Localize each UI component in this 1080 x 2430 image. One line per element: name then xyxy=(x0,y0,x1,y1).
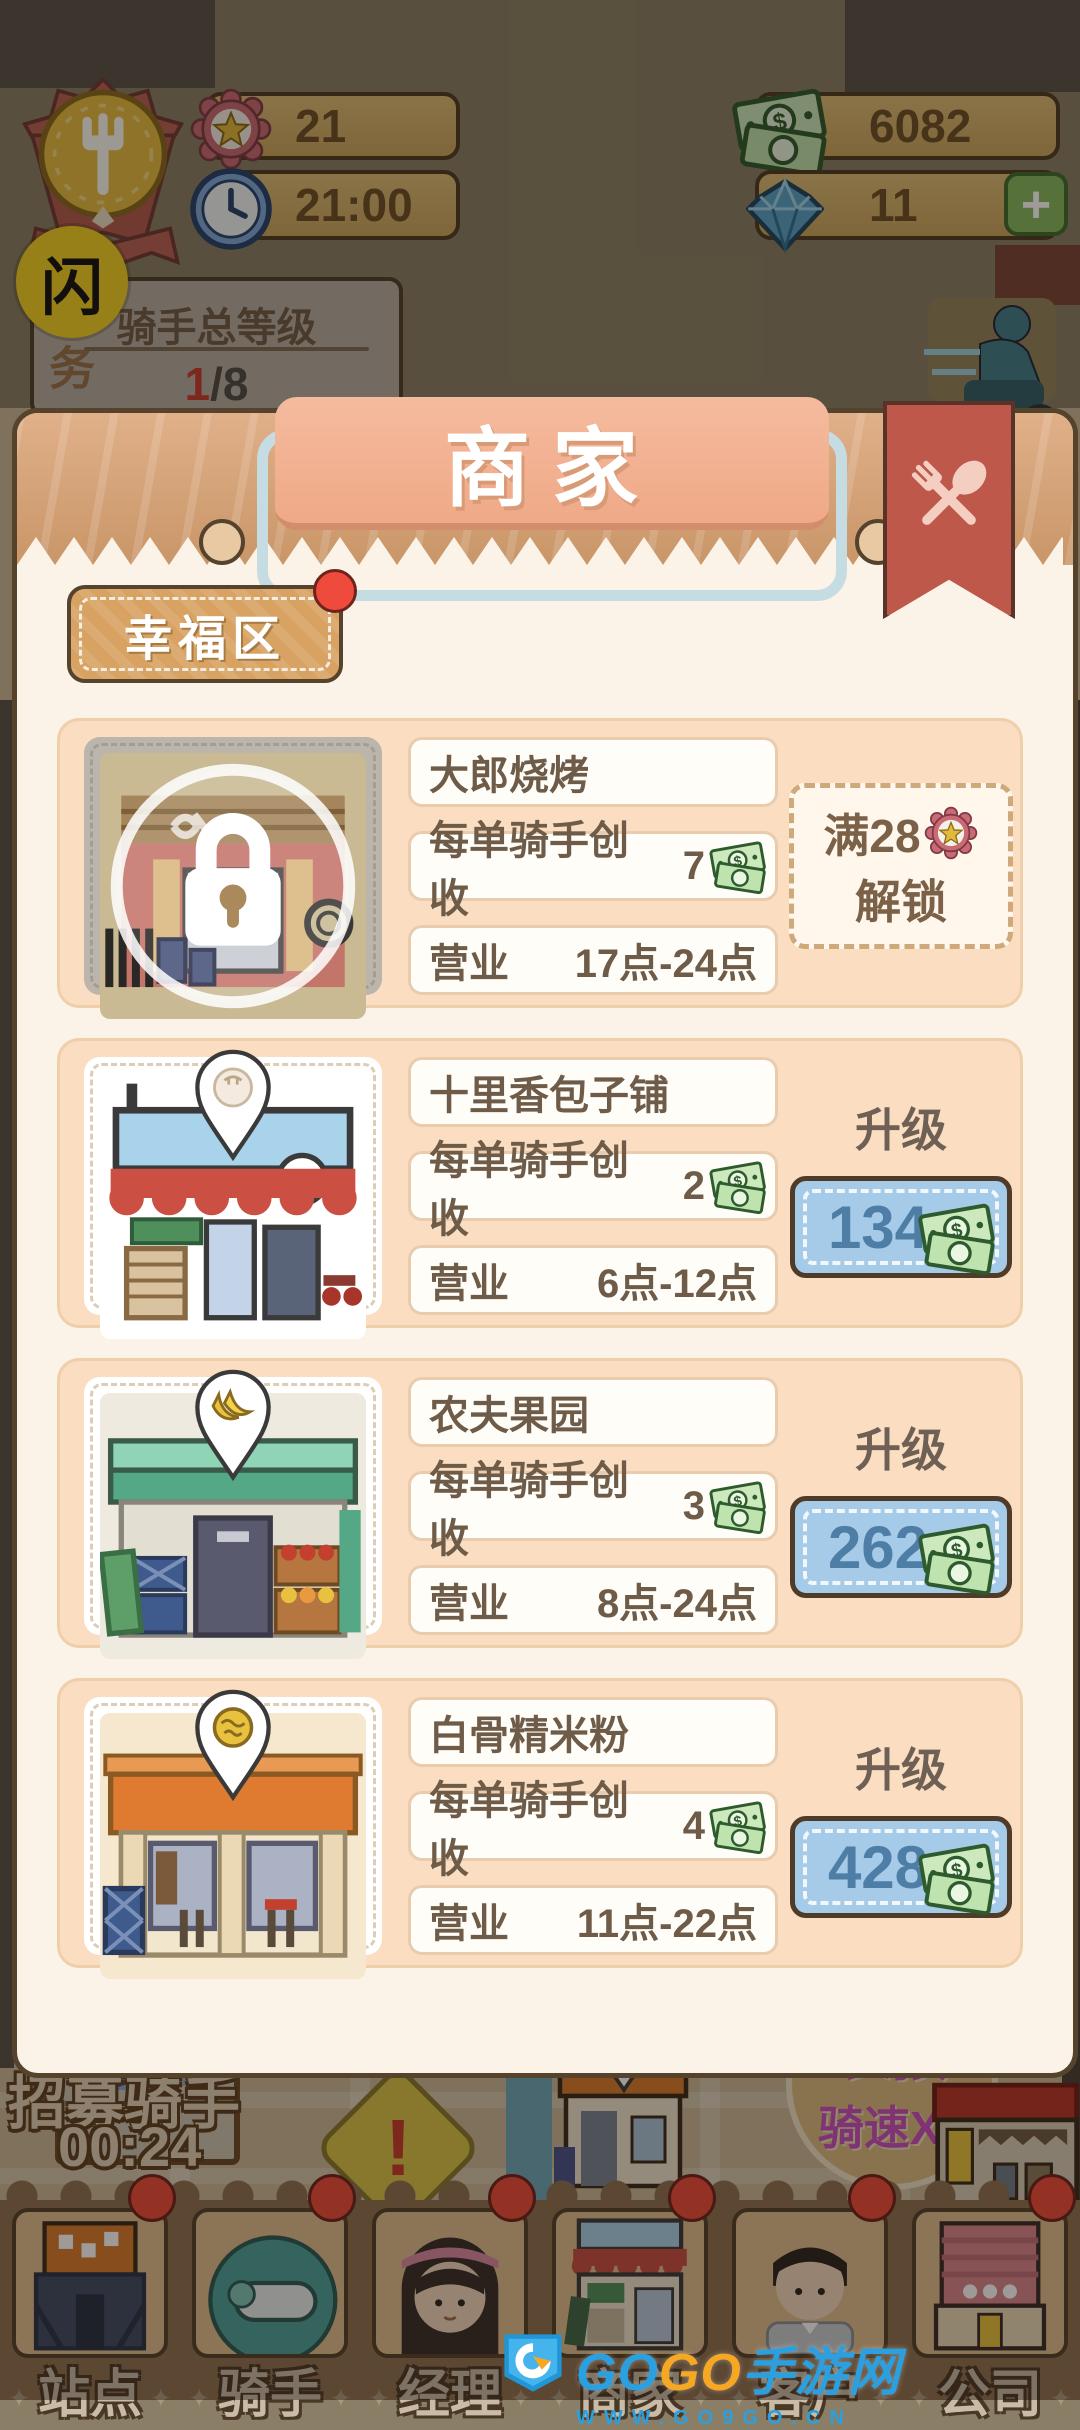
money-icon xyxy=(707,1155,769,1217)
tab-notification-dot xyxy=(313,569,357,613)
watermark-url: WWW.GO9GO.CN xyxy=(576,2407,901,2430)
income-value: 2 xyxy=(683,1164,705,1209)
unlock-requirement: 满28 xyxy=(823,800,920,866)
shop-image-frame xyxy=(84,737,382,995)
income-value: 3 xyxy=(683,1484,705,1529)
shop-name-field: 大郎烧烤 xyxy=(408,737,778,807)
merchants-modal: 商家 幸福区 xyxy=(12,408,1078,2078)
close-button[interactable] xyxy=(883,401,1015,619)
shop-name-field: 十里香包子铺 xyxy=(408,1057,778,1127)
upgrade-button[interactable]: 428 xyxy=(790,1816,1012,1918)
shop-card-dalang-bbq[interactable]: 大郎烧烤 每单骑手创收 7 营业 17点-24点 满28 解锁 xyxy=(57,718,1023,1008)
map-pin-noodle-icon xyxy=(189,1689,277,1803)
shop-name: 大郎烧烤 xyxy=(429,743,589,801)
screw-icon xyxy=(199,519,245,565)
hours-value: 17点-24点 xyxy=(575,931,757,989)
shop-image-frame xyxy=(84,1057,382,1315)
brand-cn: 手游网 xyxy=(742,2344,901,2402)
shop-name-field: 白骨精米粉 xyxy=(408,1697,778,1767)
upgrade-button[interactable]: 262 xyxy=(790,1496,1012,1598)
hours-field: 营业 11点-22点 xyxy=(408,1885,778,1955)
hours-value: 11点-22点 xyxy=(577,1891,757,1949)
hours-field: 营业 6点-12点 xyxy=(408,1245,778,1315)
title-plate: 商家 xyxy=(275,397,829,530)
hours-label: 营业 xyxy=(429,1251,509,1309)
star-badge-icon xyxy=(923,805,979,861)
shop-name: 农夫果园 xyxy=(429,1383,589,1441)
hours-label: 营业 xyxy=(429,1571,509,1629)
income-field: 每单骑手创收 4 xyxy=(408,1791,778,1861)
shop-name-field: 农夫果园 xyxy=(408,1377,778,1447)
income-value: 4 xyxy=(683,1804,705,1849)
income-field: 每单骑手创收 2 xyxy=(408,1151,778,1221)
brand-part1: GO xyxy=(576,2344,659,2402)
income-label: 每单骑手创收 xyxy=(429,1128,669,1244)
income-label: 每单骑手创收 xyxy=(429,808,669,924)
map-pin-banana-icon xyxy=(189,1369,277,1483)
brand-part2: GO xyxy=(659,2344,742,2402)
shop-name: 白骨精米粉 xyxy=(429,1703,629,1761)
shop-card-baozi[interactable]: 十里香包子铺 每单骑手创收 2 营业 6点-12点 升级 134 xyxy=(57,1038,1023,1328)
hours-label: 营业 xyxy=(429,1891,509,1949)
hours-label: 营业 xyxy=(429,931,509,989)
shop-card-rice-noodle[interactable]: 白骨精米粉 每单骑手创收 4 营业 11点-22点 升级 428 xyxy=(57,1678,1023,1968)
income-value: 7 xyxy=(683,844,705,889)
unlock-action: 解锁 xyxy=(855,866,947,932)
hours-field: 营业 8点-24点 xyxy=(408,1565,778,1635)
shop-card-fruit[interactable]: 农夫果园 每单骑手创收 3 营业 8点-24点 升级 262 xyxy=(57,1358,1023,1648)
upgrade-label: 升级 xyxy=(855,1414,947,1480)
tab-district-xingfu[interactable]: 幸福区 xyxy=(67,585,343,683)
hours-value: 8点-24点 xyxy=(597,1571,757,1629)
tab-inner-dash xyxy=(79,597,331,671)
shop-name: 十里香包子铺 xyxy=(429,1063,669,1121)
money-icon xyxy=(707,835,769,897)
income-label: 每单骑手创收 xyxy=(429,1448,669,1564)
upgrade-button[interactable]: 134 xyxy=(790,1176,1012,1278)
upgrade-label: 升级 xyxy=(855,1094,947,1160)
spoon-fork-icon xyxy=(889,423,1009,573)
money-icon xyxy=(915,1195,999,1279)
money-icon xyxy=(915,1835,999,1919)
hours-field: 营业 17点-24点 xyxy=(408,925,778,995)
unlock-requirement-box[interactable]: 满28 解锁 xyxy=(789,783,1013,949)
income-label: 每单骑手创收 xyxy=(429,1768,669,1884)
watermark: GOGO手游网 WWW.GO9GO.CN xyxy=(500,2330,901,2430)
lock-icon xyxy=(84,737,382,1035)
shop-image-frame xyxy=(84,1697,382,1955)
upgrade-label: 升级 xyxy=(855,1734,947,1800)
income-field: 每单骑手创收 3 xyxy=(408,1471,778,1541)
money-icon xyxy=(707,1795,769,1857)
shop-image-frame xyxy=(84,1377,382,1635)
income-field: 每单骑手创收 7 xyxy=(408,831,778,901)
gogo-logo-icon xyxy=(500,2330,566,2396)
money-icon xyxy=(707,1475,769,1537)
modal-title: 商家 xyxy=(444,398,660,523)
hours-value: 6点-12点 xyxy=(597,1251,757,1309)
map-pin-baozi-icon xyxy=(189,1049,277,1163)
money-icon xyxy=(915,1515,999,1599)
